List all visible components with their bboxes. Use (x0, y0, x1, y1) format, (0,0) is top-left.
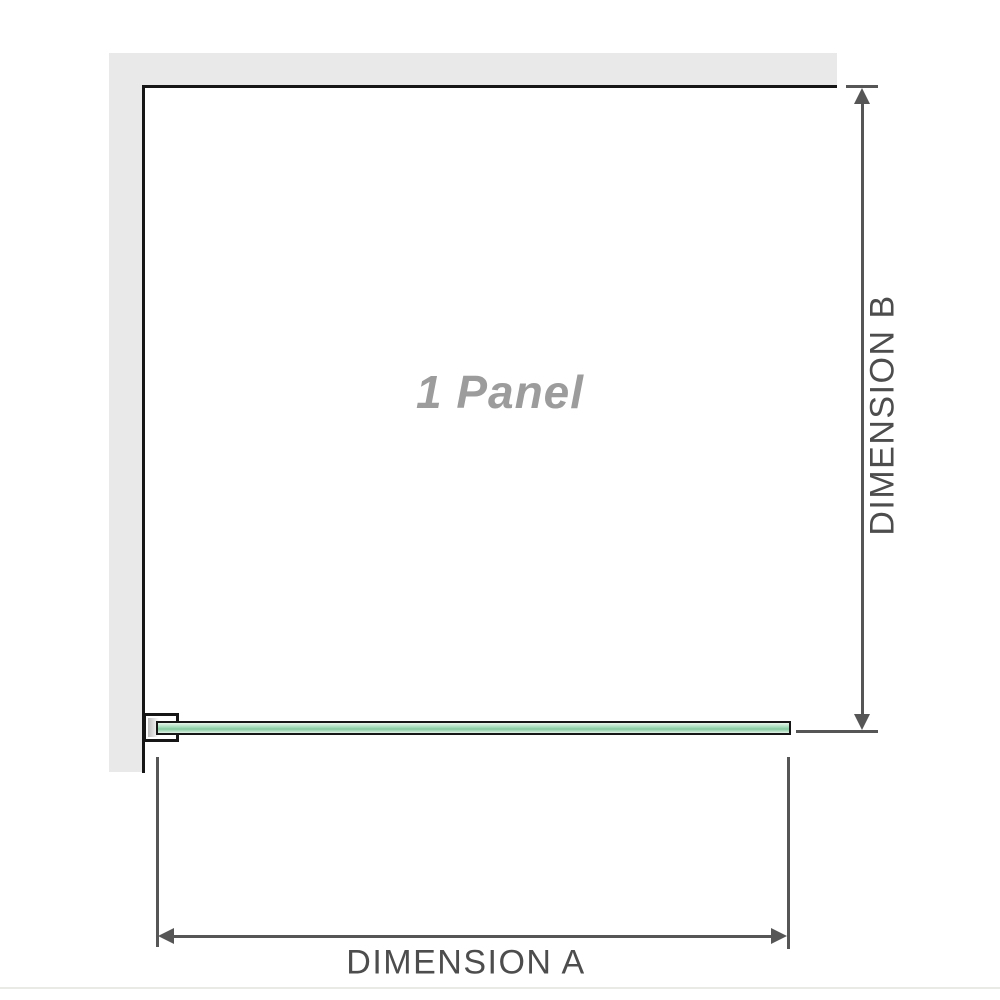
shower-panel-diagram: 1 Panel DIMENSION B DIMENSION A (0, 0, 1000, 1000)
panel-left-border (142, 85, 145, 773)
arrow-down-icon (854, 714, 870, 730)
dimension-b-bottom-tick (796, 730, 878, 733)
arrow-left-icon (158, 928, 174, 944)
dimension-a-right-extension (787, 757, 790, 949)
panel-top-border (143, 85, 837, 88)
wall-top-strip (109, 53, 837, 85)
arrow-up-icon (854, 88, 870, 104)
glass-panel-strip (156, 721, 791, 735)
dimension-a-line (163, 935, 780, 938)
dimension-a-label: DIMENSION A (346, 944, 585, 983)
image-baseline-divider (0, 987, 1000, 989)
dimension-a-left-extension (156, 757, 159, 947)
arrow-right-icon (771, 928, 787, 944)
dimension-b-label: DIMENSION B (864, 294, 903, 535)
wall-left-strip (109, 53, 143, 772)
panel-label: 1 Panel (416, 365, 584, 419)
